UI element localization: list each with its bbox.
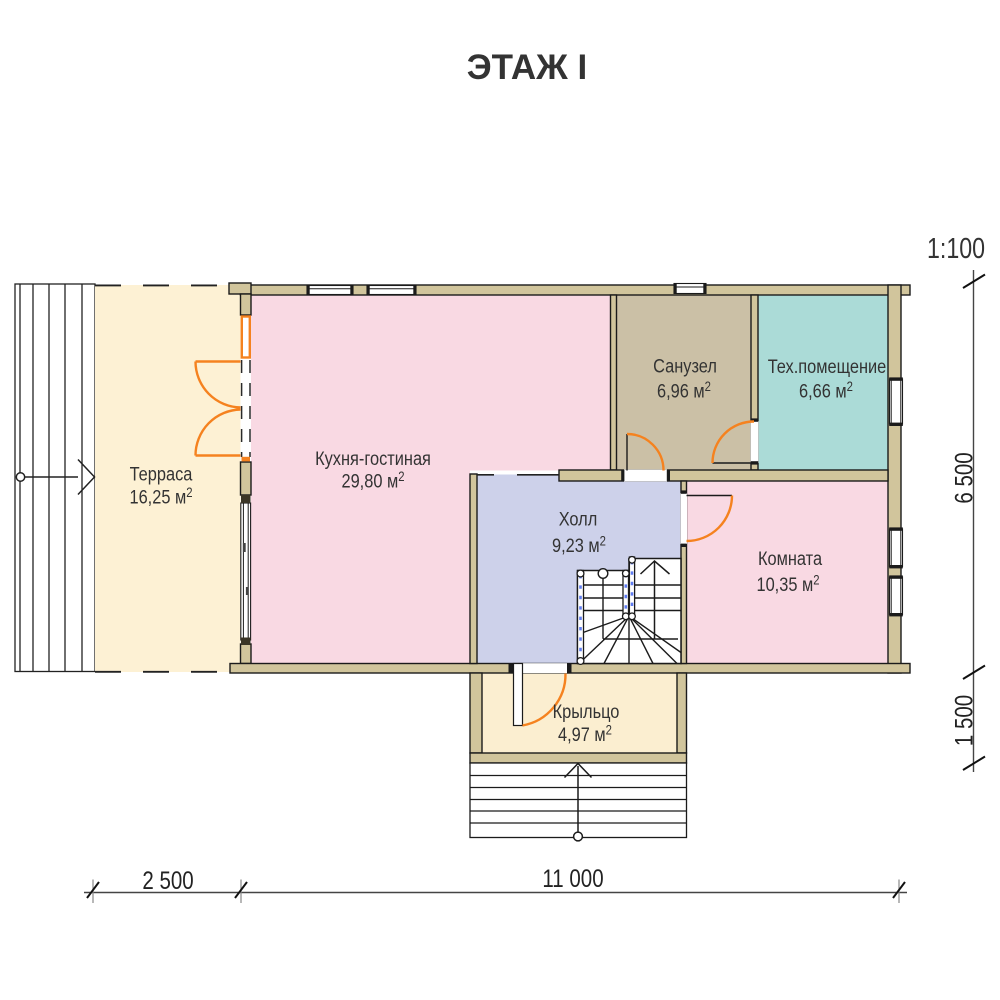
svg-text:6,96 м2: 6,96 м2 — [657, 379, 711, 402]
svg-text:6 500: 6 500 — [950, 452, 978, 503]
svg-text:9,23 м2: 9,23 м2 — [552, 534, 606, 557]
svg-text:1 500: 1 500 — [950, 695, 978, 746]
svg-text:6,66 м2: 6,66 м2 — [799, 379, 853, 402]
svg-text:ЭТАЖ I: ЭТАЖ I — [467, 48, 587, 87]
svg-text:Терраса: Терраса — [130, 463, 194, 485]
svg-text:10,35 м2: 10,35 м2 — [756, 573, 819, 596]
svg-text:Санузел: Санузел — [653, 355, 717, 377]
svg-text:Холл: Холл — [559, 508, 598, 530]
svg-text:Тех.помещение: Тех.помещение — [768, 356, 887, 378]
svg-text:Крыльцо: Крыльцо — [553, 701, 620, 723]
svg-text:Кухня-гостиная: Кухня-гостиная — [315, 448, 431, 470]
svg-text:4,97 м2: 4,97 м2 — [558, 723, 612, 746]
svg-text:29,80 м2: 29,80 м2 — [341, 469, 404, 492]
svg-text:Комната: Комната — [758, 548, 823, 570]
svg-text:11 000: 11 000 — [542, 864, 603, 892]
svg-text:1:100: 1:100 — [927, 231, 985, 264]
svg-text:16,25 м2: 16,25 м2 — [129, 485, 192, 508]
svg-text:2 500: 2 500 — [142, 866, 193, 894]
